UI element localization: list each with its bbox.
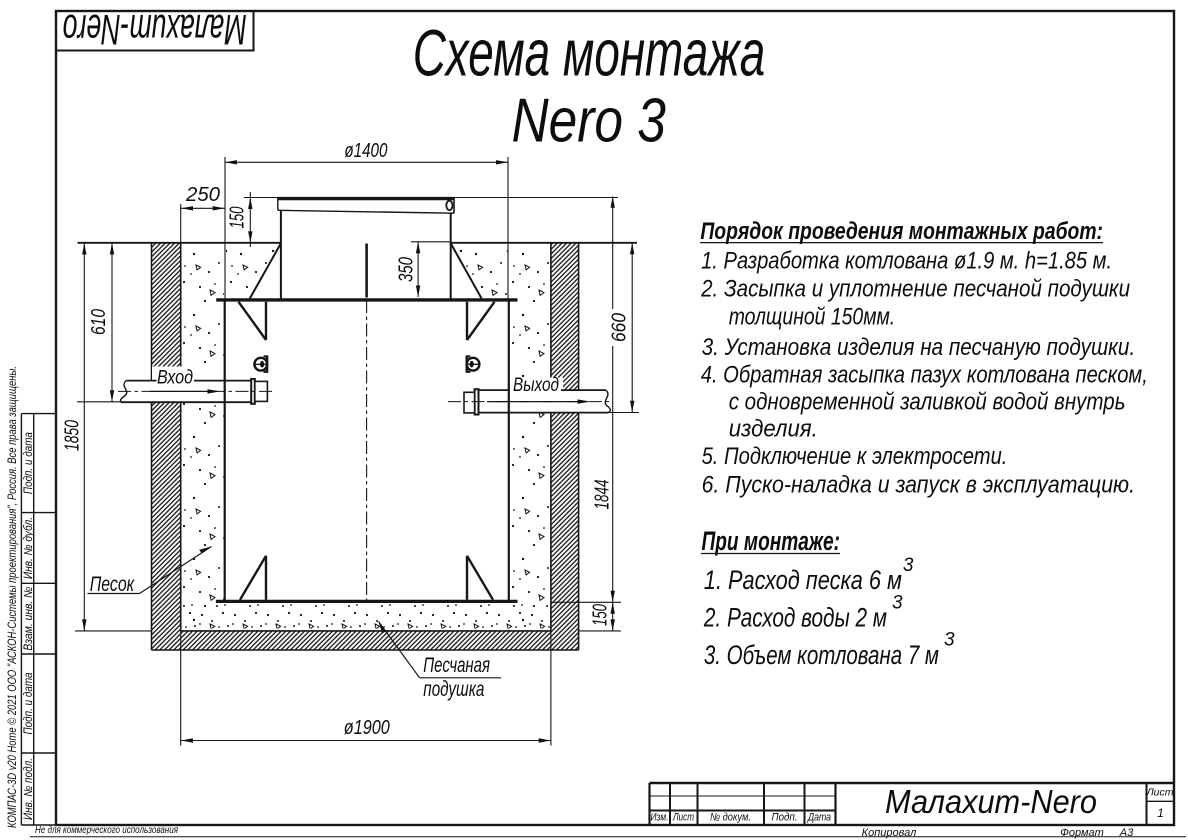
svg-text:5. Подключение к электросети.: 5. Подключение к электросети. [702,443,1008,470]
svg-text:Малахит-Nero: Малахит-Nero [63,5,247,53]
svg-text:Дата: Дата [806,812,831,824]
svg-text:Nero 3: Nero 3 [512,87,666,156]
svg-text:350: 350 [396,257,418,282]
svg-text:1. Разработка котлована ø1.9 м: 1. Разработка котлована ø1.9 м. h=1.85 м… [701,248,1112,275]
svg-text:КОМПАС-3D v20 Home © 2021 ООО: КОМПАС-3D v20 Home © 2021 ООО "АСКОН-Сис… [7,366,19,828]
svg-text:Копировал: Копировал [862,827,917,839]
svg-text:Песчаная: Песчаная [423,654,490,677]
svg-text:6. Пуско-наладка и запуск в эк: 6. Пуско-наладка и запуск в эксплуатацию… [702,472,1135,499]
svg-text:610: 610 [88,309,110,335]
svg-text:2. Засыпка и уплотнение песчан: 2. Засыпка и уплотнение песчаной подушки [700,276,1130,303]
svg-text:ø1400: ø1400 [344,140,387,162]
svg-text:подушка: подушка [423,678,484,701]
svg-text:с одновременной заливкой водой: с одновременной заливкой водой внутрь [729,389,1126,416]
svg-text:1: 1 [1157,806,1164,820]
svg-text:3: 3 [944,630,955,651]
svg-text:Подп. и дата: Подп. и дата [23,673,35,735]
svg-text:150: 150 [227,207,249,229]
svg-text:изделия.: изделия. [729,415,818,442]
svg-text:ø1900: ø1900 [344,717,390,739]
svg-text:3: 3 [892,593,903,614]
svg-text:Порядок проведения монтажных р: Порядок проведения монтажных работ: [700,218,1103,245]
svg-text:250: 250 [185,184,220,206]
svg-text:1844: 1844 [592,480,614,510]
svg-text:Лист: Лист [1145,787,1173,799]
svg-text:150: 150 [589,604,611,626]
svg-text:Схема монтажа: Схема монтажа [413,16,766,90]
svg-text:Инв. № подл.: Инв. № подл. [23,758,35,820]
svg-text:№ докум.: № докум. [710,812,751,824]
svg-text:1850: 1850 [62,420,84,451]
svg-text:2. Расход воды 2 м: 2. Расход воды 2 м [703,603,887,633]
svg-text:660: 660 [608,313,630,342]
svg-text:Подп. и дата: Подп. и дата [23,432,35,494]
svg-text:Подп.: Подп. [772,812,798,824]
svg-text:А3: А3 [1119,827,1134,839]
svg-text:При монтаже:: При монтаже: [702,526,841,556]
svg-text:Изм.: Изм. [651,812,669,824]
svg-text:1. Расход песка 6 м: 1. Расход песка 6 м [704,565,902,595]
svg-text:Вход: Вход [157,368,193,389]
svg-text:4. Обратная засыпка пазух котл: 4. Обратная засыпка пазух котлована песк… [701,362,1148,389]
svg-text:Взам. инв. №: Взам. инв. № [23,586,35,650]
svg-text:Малахит-Nero: Малахит-Nero [885,783,1097,820]
svg-text:Формат: Формат [1060,827,1104,839]
svg-text:Выход: Выход [513,375,559,396]
svg-text:3. Установка изделия на песчан: 3. Установка изделия на песчаную подушки… [702,334,1136,361]
svg-text:Не для коммерческого использов: Не для коммерческого использования [35,824,178,836]
svg-text:Лист: Лист [672,812,694,824]
svg-text:3: 3 [903,555,914,576]
svg-text:Инв. № дубл.: Инв. № дубл. [23,517,35,579]
svg-text:толщиной 150мм.: толщиной 150мм. [729,303,896,330]
svg-text:3. Объем котлована 7 м: 3. Объем котлована 7 м [704,640,939,670]
svg-text:Песок: Песок [90,573,135,596]
